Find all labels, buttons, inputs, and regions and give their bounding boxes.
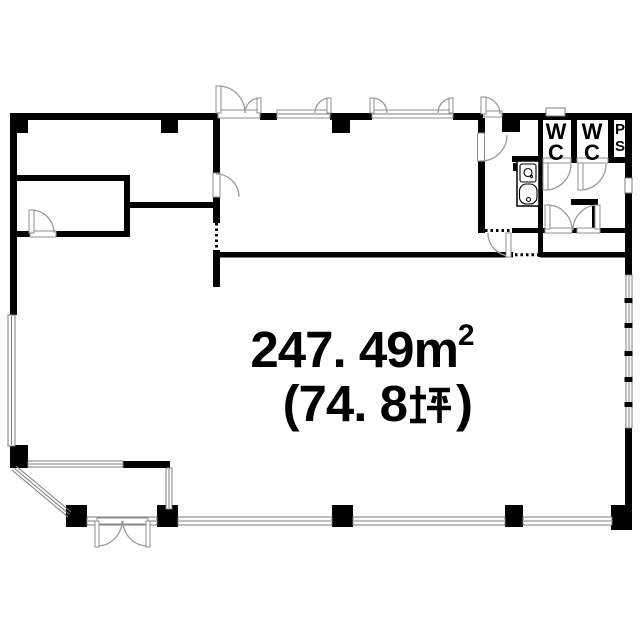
top-center-window-casement <box>277 98 331 118</box>
ps-label-line1: P <box>615 121 625 138</box>
door-leaf <box>578 163 583 190</box>
window-diagonal <box>16 466 71 512</box>
bowl-dot <box>527 198 531 202</box>
door-arc <box>580 164 606 190</box>
column <box>611 505 632 530</box>
area-label: 247. 49m2 (74. 8 ) <box>250 319 474 432</box>
door-leaf <box>506 233 511 257</box>
area-tsubo-open: (74. 8 <box>283 375 407 432</box>
wall-segment <box>215 252 513 258</box>
window-tick <box>625 323 633 328</box>
column <box>10 445 28 468</box>
kitchenette-door <box>478 133 508 161</box>
wall-segment <box>128 202 220 208</box>
window-tick <box>625 351 633 356</box>
toilet-anteroom-door-right <box>573 205 600 233</box>
area-unit-sup: 2 <box>458 319 474 352</box>
wall-segment <box>571 157 577 163</box>
area-tsubo-close: ) <box>456 375 473 432</box>
wall-segment <box>540 252 632 258</box>
area-unit: m <box>414 321 458 378</box>
door-leaf <box>29 210 34 233</box>
area-value: 247. 49 <box>250 321 413 378</box>
floor-plan-drawing: W C W C P S 247. 49m2 (74. 8 ) <box>0 0 640 640</box>
door-leaf <box>481 97 486 114</box>
wall-segment <box>625 193 632 275</box>
wall-segment <box>14 175 130 181</box>
tsubo-kanji <box>410 386 451 423</box>
door-leaf <box>213 173 220 197</box>
door-leaf <box>146 521 150 547</box>
wall-segment <box>478 160 485 233</box>
dashed-openings <box>217 223 541 255</box>
wc1-label-line2: C <box>548 140 564 165</box>
column <box>332 505 353 527</box>
kitchenette-exterior-door <box>481 97 502 117</box>
door-leaf <box>595 205 600 229</box>
column <box>505 505 523 527</box>
column <box>10 113 28 133</box>
wall-segment <box>625 428 632 510</box>
toilet-anteroom-door-left <box>545 205 572 233</box>
window-diagonal <box>14 468 70 515</box>
door-leaf <box>370 98 374 113</box>
door-leaf <box>216 86 221 113</box>
entrance-double-door <box>95 518 150 547</box>
top-left-double-door <box>216 86 261 118</box>
wall-segment <box>260 113 277 120</box>
door-leaf <box>449 98 453 113</box>
wall-segment <box>571 113 577 163</box>
door-leaf <box>545 205 550 229</box>
wall-segment <box>608 157 614 163</box>
floor-plan-page: W C W C P S 247. 49m2 (74. 8 ) <box>0 0 640 640</box>
cistern-dot <box>531 176 533 178</box>
window-tick <box>625 402 633 407</box>
column <box>502 113 520 132</box>
wall-segment <box>478 118 485 133</box>
sill <box>218 110 260 118</box>
door-arc <box>547 205 572 230</box>
door-leaf <box>327 98 331 113</box>
door-leaf <box>543 163 548 190</box>
storage-room-door <box>29 210 56 237</box>
column <box>161 113 178 133</box>
wall-segment <box>625 113 632 178</box>
window-tick <box>625 377 633 382</box>
door-leaf <box>478 133 485 161</box>
wall-segment <box>614 157 632 163</box>
door-arc <box>218 86 245 113</box>
window-tick <box>625 298 633 303</box>
wall-segment <box>123 461 170 468</box>
wall-segment <box>213 113 220 174</box>
column <box>66 505 87 527</box>
wall-segment <box>10 113 218 120</box>
column <box>332 113 350 133</box>
wall-segment <box>14 231 30 237</box>
window-band <box>625 178 632 193</box>
wall-segment <box>600 228 632 233</box>
area-m2-text: 247. 49m2 <box>250 319 474 378</box>
window-diagonal <box>12 470 68 517</box>
toilet-fixture <box>513 161 539 206</box>
partition-door-middle <box>213 173 239 197</box>
top-long-window-casements <box>370 98 453 118</box>
ps-label-line2: S <box>615 138 625 155</box>
door-leaf <box>257 98 261 113</box>
wall-segment <box>608 113 614 163</box>
window-band <box>546 108 565 116</box>
wall-segment <box>213 197 220 223</box>
door-arc <box>545 164 571 190</box>
door-leaf <box>95 521 99 547</box>
wall-segment <box>10 113 17 315</box>
wc2-label-line2: C <box>584 140 600 165</box>
wall-segment <box>56 231 130 237</box>
